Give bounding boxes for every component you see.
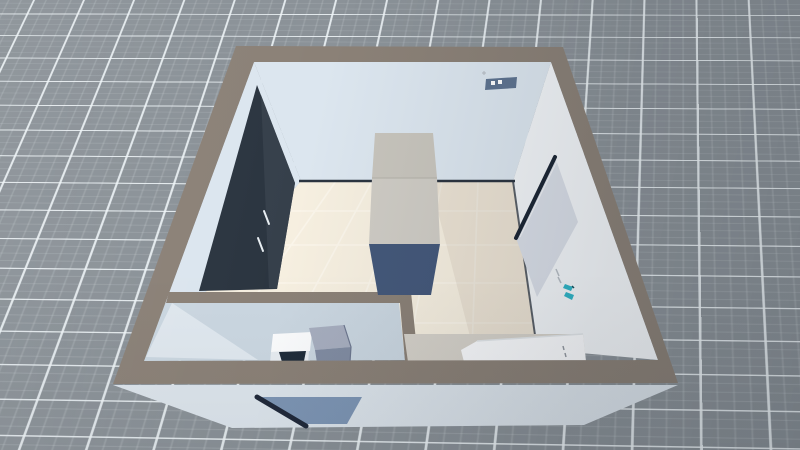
tall-cabinet-mid[interactable] — [369, 178, 440, 244]
room-scene[interactable] — [0, 0, 800, 450]
vanity-top[interactable] — [271, 332, 312, 352]
tall-cabinet-front[interactable] — [369, 244, 440, 295]
viewport-3d[interactable] — [0, 0, 800, 450]
ac-vent-right — [498, 80, 502, 84]
vanity-sink-inset — [279, 351, 306, 362]
front-wall-exterior[interactable] — [113, 385, 678, 428]
ac-vent-left — [491, 81, 495, 85]
tall-cabinet-top[interactable] — [372, 133, 437, 178]
partition-wall-top[interactable] — [166, 292, 404, 303]
